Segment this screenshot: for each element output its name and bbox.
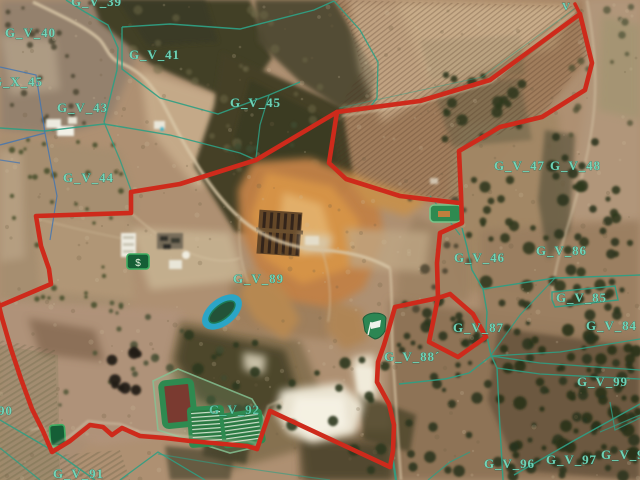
svg-text:G_V_88´: G_V_88´ bbox=[384, 349, 440, 364]
svg-text:G_V_39: G_V_39 bbox=[71, 0, 122, 9]
svg-text:G_V_41: G_V_41 bbox=[129, 47, 180, 62]
svg-text:G_V_47: G_V_47 bbox=[494, 158, 545, 173]
svg-text:G_V_98: G_V_98 bbox=[601, 447, 640, 462]
svg-text:G_V_89: G_V_89 bbox=[233, 271, 284, 286]
svg-text:G_V_48: G_V_48 bbox=[550, 158, 601, 173]
svg-text:G_V_96: G_V_96 bbox=[484, 456, 535, 471]
svg-text:G_V_91: G_V_91 bbox=[53, 466, 104, 480]
svg-text:G_V_87: G_V_87 bbox=[453, 320, 504, 335]
svg-text:G_X_45: G_X_45 bbox=[0, 74, 43, 89]
svg-text:G_V_99: G_V_99 bbox=[577, 374, 628, 389]
svg-text:$: $ bbox=[135, 258, 141, 269]
svg-text:G_V_85: G_V_85 bbox=[556, 290, 607, 305]
svg-text:90: 90 bbox=[0, 403, 13, 418]
svg-text:G_V_92: G_V_92 bbox=[209, 402, 260, 417]
svg-text:G_V_46: G_V_46 bbox=[454, 250, 505, 265]
svg-text:G_V_86: G_V_86 bbox=[536, 243, 587, 258]
svg-text:G_V_84: G_V_84 bbox=[586, 318, 637, 333]
svg-text:G_V_43: G_V_43 bbox=[57, 100, 108, 115]
svg-text:G_V_44: G_V_44 bbox=[63, 170, 114, 185]
svg-text:G_V_97: G_V_97 bbox=[546, 452, 597, 467]
svg-text:G_V_45: G_V_45 bbox=[230, 95, 281, 110]
svg-text:G_V_40: G_V_40 bbox=[5, 25, 56, 40]
svg-text:V: V bbox=[562, 1, 571, 13]
